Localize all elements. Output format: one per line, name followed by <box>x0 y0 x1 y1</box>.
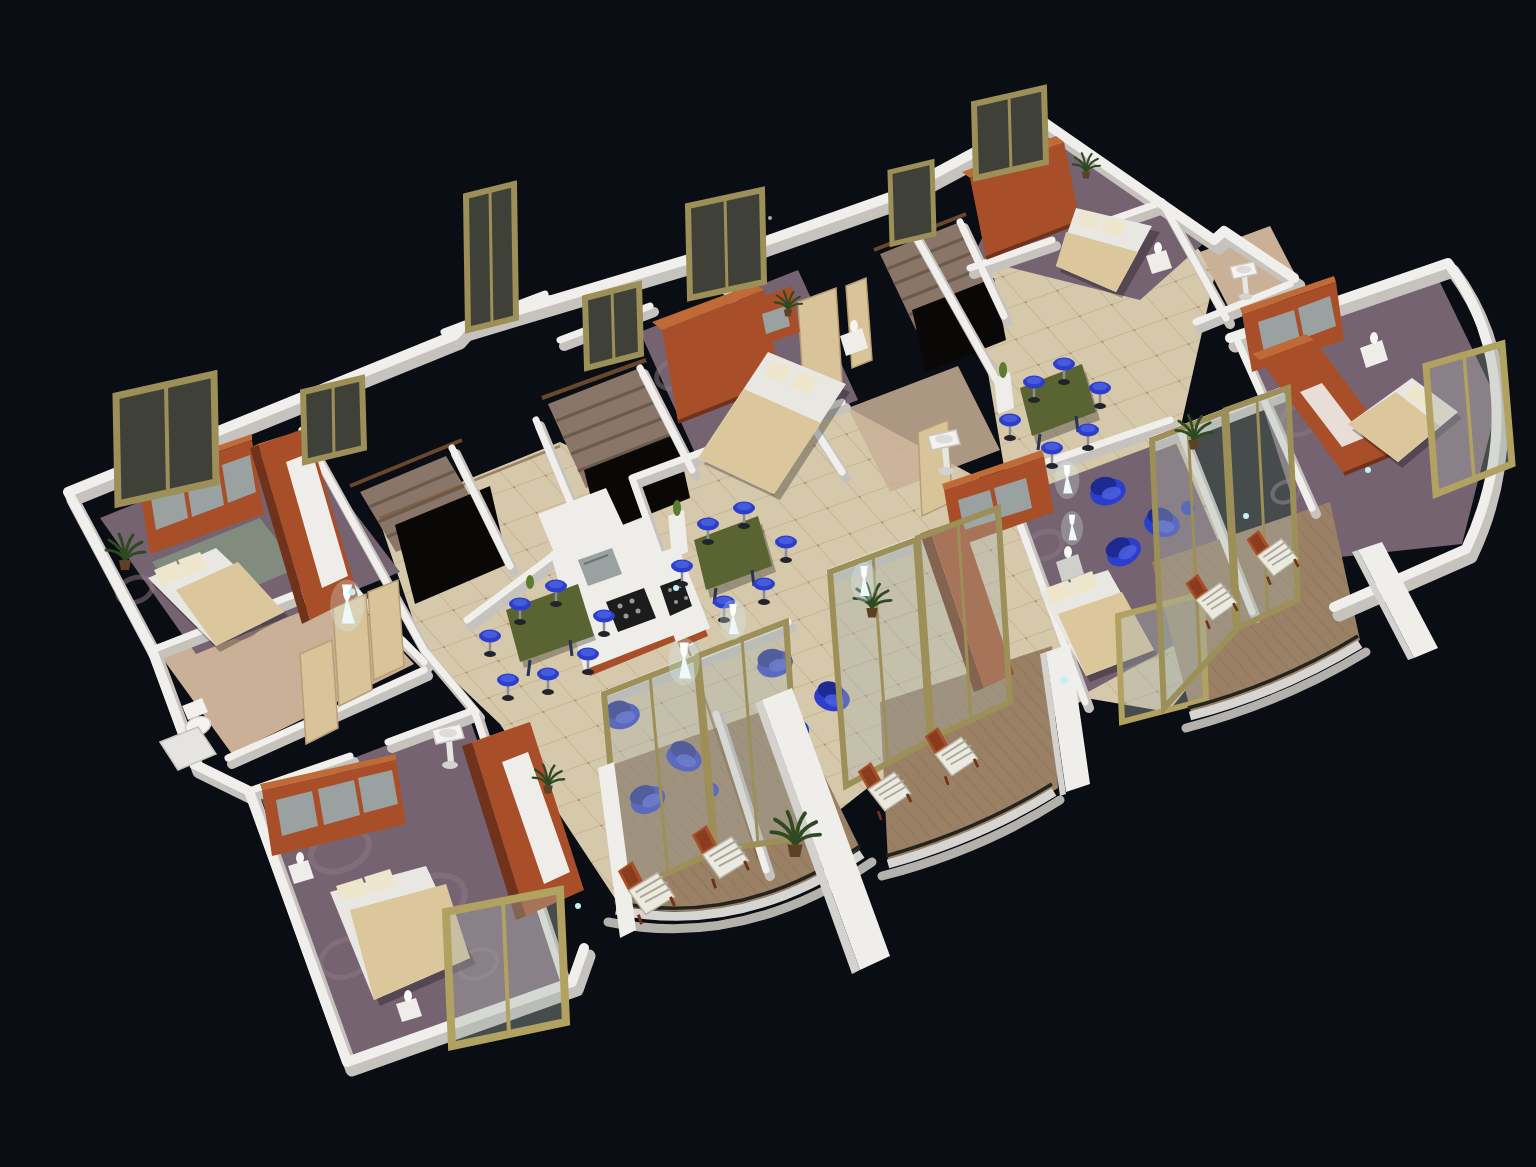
window-double-leaning <box>446 890 566 1046</box>
dust-speck <box>768 216 772 220</box>
door-panel <box>300 640 338 744</box>
window-double-leaning <box>1426 344 1512 494</box>
glowing-floor-lamp <box>668 638 699 686</box>
glowing-floor-lamp <box>1055 461 1080 499</box>
window-single <box>585 284 641 368</box>
glowing-floor-lamp <box>1061 511 1083 545</box>
glass-door <box>830 540 930 786</box>
door-panel <box>368 580 404 680</box>
window-tall-double <box>466 184 516 330</box>
window-single <box>890 162 934 244</box>
glowing-floor-lamp <box>851 562 877 602</box>
window-double <box>688 190 764 298</box>
floor-plan-render-stage <box>0 0 1536 1167</box>
glowing-floor-lamp <box>720 600 746 640</box>
glowing-floor-lamp <box>330 579 364 631</box>
apartment-3d-floor-plan <box>0 0 1536 1167</box>
glass-door <box>1226 388 1298 628</box>
window-single <box>303 378 364 462</box>
window-double <box>116 374 216 504</box>
glass-door <box>918 508 1010 738</box>
window-double <box>974 88 1046 178</box>
